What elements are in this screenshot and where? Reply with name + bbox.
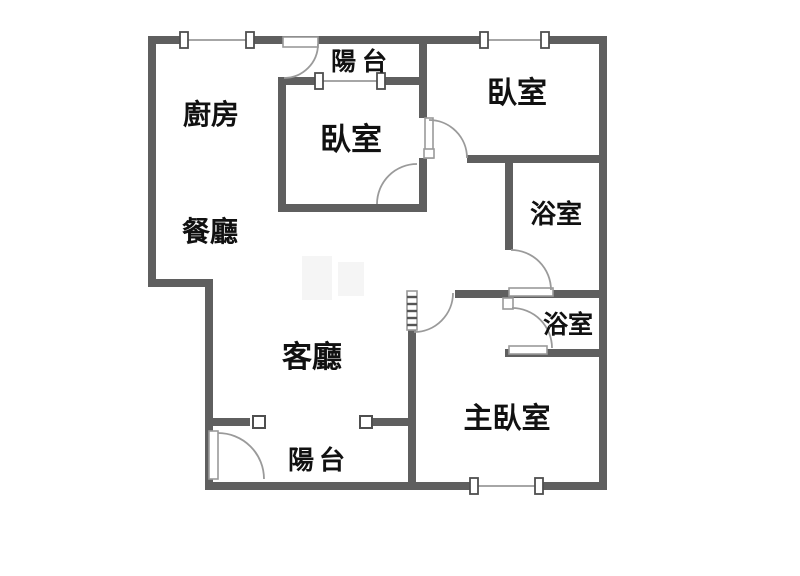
room-label-master-bedroom: 主臥室 <box>463 401 550 435</box>
window-top-right <box>480 32 549 48</box>
room-label-kitchen: 廚房 <box>183 98 239 130</box>
door-arc <box>377 164 417 204</box>
room-label-bedroom-top-middle: 臥室 <box>320 122 382 157</box>
door-bedroom-top-middle <box>377 164 417 204</box>
wall-balcony-bottom-left <box>205 418 250 426</box>
wall-living-divider <box>408 328 416 490</box>
wall-bedroom1-left-lower <box>419 158 427 212</box>
door-kitchen-balcony <box>283 37 318 78</box>
wall-balcony-bottom-right <box>372 418 416 426</box>
room-label-bathroom-lower: 浴室 <box>543 310 593 339</box>
wall-endcap-right <box>360 416 372 428</box>
door-master-bedroom <box>407 291 453 332</box>
wall-bedroom2-bottom <box>278 204 425 212</box>
window-master-bottom <box>470 478 543 494</box>
wall-bedroom1-left-upper <box>419 36 427 118</box>
wall-bedroom2-left <box>278 77 286 212</box>
door-leaf <box>509 288 553 296</box>
room-label-balcony-top: 陽台 <box>331 47 393 76</box>
floorplan-page: 廚房 陽台 臥室 臥室 餐廳 浴室 浴室 客廳 主臥室 陽台 <box>0 0 800 576</box>
room-label-dining-room: 餐廳 <box>182 215 238 247</box>
door-leaf <box>509 346 547 354</box>
watermark <box>302 256 364 300</box>
room-label-balcony-bottom: 陽台 <box>288 445 350 475</box>
door-frame <box>424 149 434 158</box>
door-arc <box>414 293 453 332</box>
door-bedroom-top-right <box>424 118 467 158</box>
door-balcony-bottom <box>209 431 264 479</box>
door-arc <box>511 250 551 290</box>
door-leaf <box>283 37 318 47</box>
wall-bathroom-upper-left <box>505 155 513 250</box>
door-arc <box>284 44 318 78</box>
door-frame <box>503 298 513 309</box>
door-arc <box>218 433 264 479</box>
wall-exterior-step <box>148 279 213 287</box>
room-label-living-room: 客廳 <box>282 340 342 374</box>
wall-bedroom1-bottom <box>467 155 607 163</box>
floorplan-drawing: 廚房 陽台 臥室 臥室 餐廳 浴室 浴室 客廳 主臥室 陽台 <box>0 0 800 576</box>
room-label-bedroom-top-right: 臥室 <box>487 76 547 110</box>
wall-exterior-bottom <box>205 482 607 490</box>
door-bathroom-upper <box>509 250 553 296</box>
wall-endcap-left <box>253 416 265 428</box>
wall-exterior-right <box>599 36 607 490</box>
door-leaf <box>209 431 218 479</box>
room-label-bathroom-upper: 浴室 <box>530 199 582 229</box>
wall-exterior-left-upper <box>148 36 156 287</box>
window-top-left <box>180 32 254 48</box>
